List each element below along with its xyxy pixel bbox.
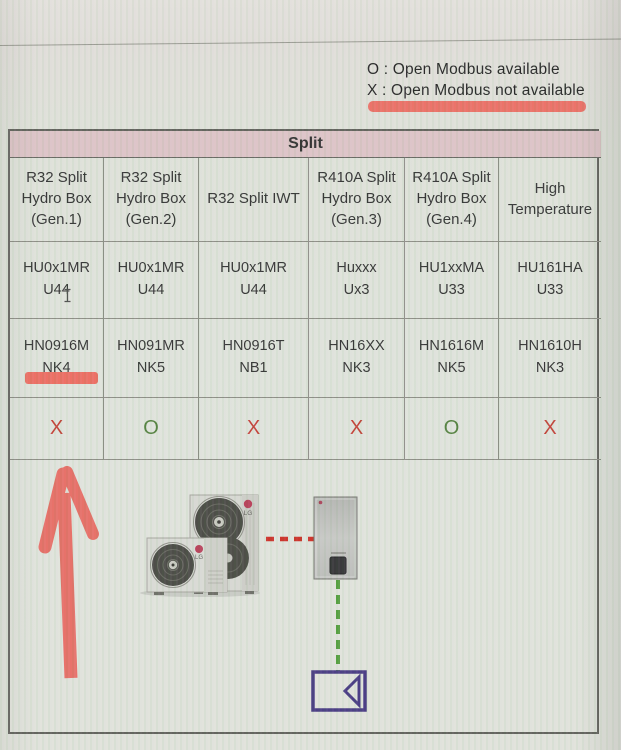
hydro-model-cell: HN091MR NK5: [104, 319, 199, 398]
modbus-availability-cell: X: [199, 398, 309, 460]
outdoor-model-cell: HU0x1MR U44: [104, 242, 199, 319]
column-header-gen2: R32 Split Hydro Box (Gen.2): [104, 158, 199, 242]
modbus-legend: O : Open Modbus available X : Open Modbu…: [367, 59, 585, 101]
modbus-availability-cell: X: [10, 398, 104, 460]
column-header-gen4: R410A Split Hydro Box (Gen.4): [405, 158, 499, 242]
hydro-model-cell: HN1616M NK5: [405, 319, 499, 398]
controller-symbol: [313, 672, 365, 710]
hydro-box-illustration: [314, 497, 357, 579]
outdoor-model-cell: Huxxx Ux3: [309, 242, 405, 319]
column-header-gen1: R32 Split Hydro Box (Gen.1): [10, 158, 104, 242]
hydro-model-cell: HN1610H NK3: [499, 319, 601, 398]
hydro-model-cell: HN0916T NB1: [199, 319, 309, 398]
red-highlight-marker-hn0916m: [25, 372, 98, 384]
outdoor-model-cell: HU0x1MR U44: [10, 242, 104, 319]
legend-available-line: O : Open Modbus available: [367, 59, 585, 80]
modbus-availability-cell: X: [309, 398, 405, 460]
outdoor-model-cell: HU1xxMA U33: [405, 242, 499, 319]
lg-logo-icon: [244, 500, 252, 508]
lg-logo-label: LG: [195, 555, 203, 561]
table-group-header: Split: [10, 131, 601, 158]
legend-not-available-line: X : Open Modbus not available: [367, 80, 585, 101]
hydro-model-cell: HN16XX NK3: [309, 319, 405, 398]
hydro-box-display: [330, 557, 346, 574]
outdoor-model-cell: HU0x1MR U44: [199, 242, 309, 319]
red-highlight-marker: [368, 101, 586, 112]
column-header-iwt: R32 Split IWT: [199, 158, 309, 242]
outdoor-model-cell: HU161HA U33: [499, 242, 601, 319]
modbus-availability-cell: O: [405, 398, 499, 460]
outdoor-unit-front-illustration: LG: [147, 538, 227, 595]
page-divider-line: [0, 38, 621, 46]
column-header-high-temp: High Temperature: [499, 158, 601, 242]
modbus-availability-cell: X: [499, 398, 601, 460]
hydro-model-cell: HN0916M NK4: [10, 319, 104, 398]
system-diagram: LG LG: [8, 459, 600, 734]
modbus-availability-cell: O: [104, 398, 199, 460]
text-cursor-ibeam: [62, 288, 73, 308]
column-header-gen3: R410A Split Hydro Box (Gen.3): [309, 158, 405, 242]
lg-logo-icon: [319, 501, 323, 505]
lg-logo-icon: [195, 545, 203, 553]
lg-logo-label: LG: [244, 510, 253, 517]
red-arrow-annotation: [45, 472, 93, 678]
